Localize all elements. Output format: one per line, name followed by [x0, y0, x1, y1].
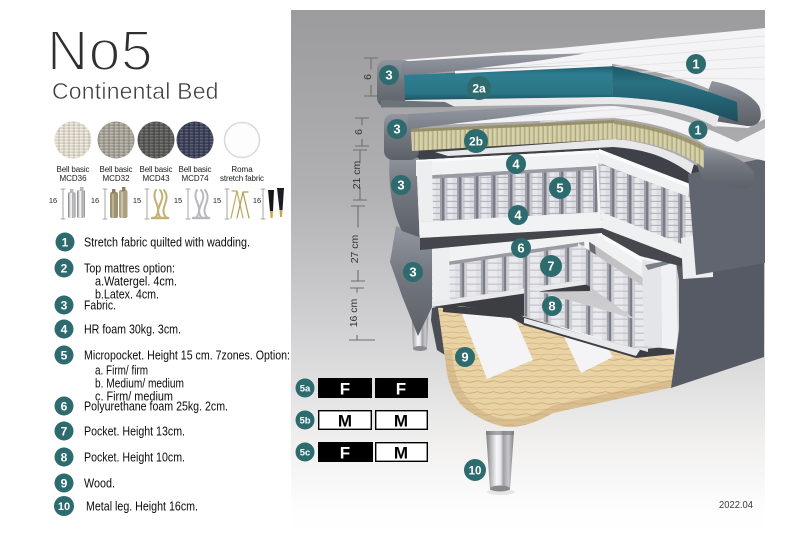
svg-text:2a: 2a: [472, 82, 486, 96]
svg-text:5a: 5a: [300, 384, 311, 395]
svg-text:7: 7: [547, 259, 554, 274]
svg-text:3: 3: [409, 265, 416, 280]
svg-text:9: 9: [61, 477, 68, 491]
svg-text:4: 4: [514, 208, 522, 223]
svg-text:5c: 5c: [300, 448, 311, 459]
svg-text:Roma: Roma: [231, 165, 253, 174]
svg-text:MCD32: MCD32: [102, 174, 130, 183]
svg-text:3: 3: [385, 68, 392, 83]
svg-text:Bell basic: Bell basic: [140, 165, 173, 174]
svg-text:4: 4: [61, 323, 68, 337]
svg-text:No5: No5: [47, 19, 153, 83]
svg-text:Bell basic: Bell basic: [179, 165, 212, 174]
svg-text:M: M: [394, 412, 408, 431]
svg-text:5b: 5b: [299, 416, 310, 427]
svg-text:3: 3: [61, 299, 68, 313]
svg-text:21 cm: 21 cm: [351, 160, 363, 189]
svg-text:Bell basic: Bell basic: [100, 165, 133, 174]
svg-text:16: 16: [253, 196, 261, 205]
svg-text:Metal leg. Height 16cm.: Metal leg. Height 16cm.: [86, 499, 198, 514]
svg-text:2: 2: [61, 262, 68, 276]
svg-text:1: 1: [695, 124, 702, 138]
svg-text:3: 3: [397, 178, 404, 193]
svg-text:1: 1: [62, 236, 69, 250]
svg-text:F: F: [340, 444, 350, 463]
svg-text:2b: 2b: [469, 135, 483, 149]
svg-text:3: 3: [393, 122, 400, 137]
svg-text:16 cm: 16 cm: [348, 298, 360, 327]
svg-text:10: 10: [58, 501, 70, 513]
svg-text:16: 16: [49, 196, 57, 205]
svg-text:15: 15: [174, 196, 182, 205]
svg-text:Continental Bed: Continental Bed: [52, 78, 219, 104]
svg-text:6: 6: [517, 241, 524, 256]
svg-text:Bell basic: Bell basic: [57, 165, 90, 174]
svg-text:F: F: [340, 380, 350, 399]
svg-text:M: M: [394, 444, 408, 463]
svg-text:1: 1: [692, 57, 699, 72]
svg-text:5: 5: [61, 349, 68, 363]
svg-text:Stretch fabric quilted with wa: Stretch fabric quilted with wadding.: [84, 235, 250, 250]
svg-text:Wood.: Wood.: [84, 476, 115, 491]
svg-text:6: 6: [353, 129, 365, 135]
svg-text:16: 16: [91, 196, 99, 205]
svg-text:2022.04: 2022.04: [719, 499, 753, 511]
svg-text:15: 15: [213, 196, 221, 205]
svg-text:MCD36: MCD36: [59, 174, 87, 183]
svg-text:M: M: [338, 412, 352, 431]
svg-text:4: 4: [512, 157, 520, 172]
svg-text:Polyurethane foam 25kg. 2cm.: Polyurethane foam 25kg. 2cm.: [84, 399, 228, 414]
svg-text:6: 6: [362, 74, 374, 80]
svg-text:Pocket. Height 10cm.: Pocket. Height 10cm.: [84, 450, 185, 465]
svg-text:10: 10: [469, 466, 482, 478]
svg-text:15: 15: [133, 196, 141, 205]
svg-text:8: 8: [548, 299, 555, 314]
svg-text:Fabric.: Fabric.: [84, 298, 116, 313]
svg-text:stretch fabric: stretch fabric: [220, 174, 264, 183]
svg-text:27 cm: 27 cm: [349, 234, 361, 263]
svg-text:MCD74: MCD74: [181, 174, 209, 183]
svg-text:HR foam 30kg. 3cm.: HR foam 30kg. 3cm.: [84, 322, 181, 337]
svg-text:Micropocket. Height 15 cm. 7zo: Micropocket. Height 15 cm. 7zones. Optio…: [84, 348, 290, 363]
svg-text:6: 6: [61, 400, 68, 414]
svg-text:F: F: [396, 380, 406, 399]
svg-text:5: 5: [556, 181, 563, 196]
svg-text:7: 7: [61, 425, 68, 439]
svg-text:Pocket. Height 13cm.: Pocket. Height 13cm.: [84, 424, 185, 439]
svg-text:8: 8: [61, 451, 68, 465]
svg-text:MCD43: MCD43: [142, 174, 170, 183]
svg-text:9: 9: [461, 350, 468, 365]
